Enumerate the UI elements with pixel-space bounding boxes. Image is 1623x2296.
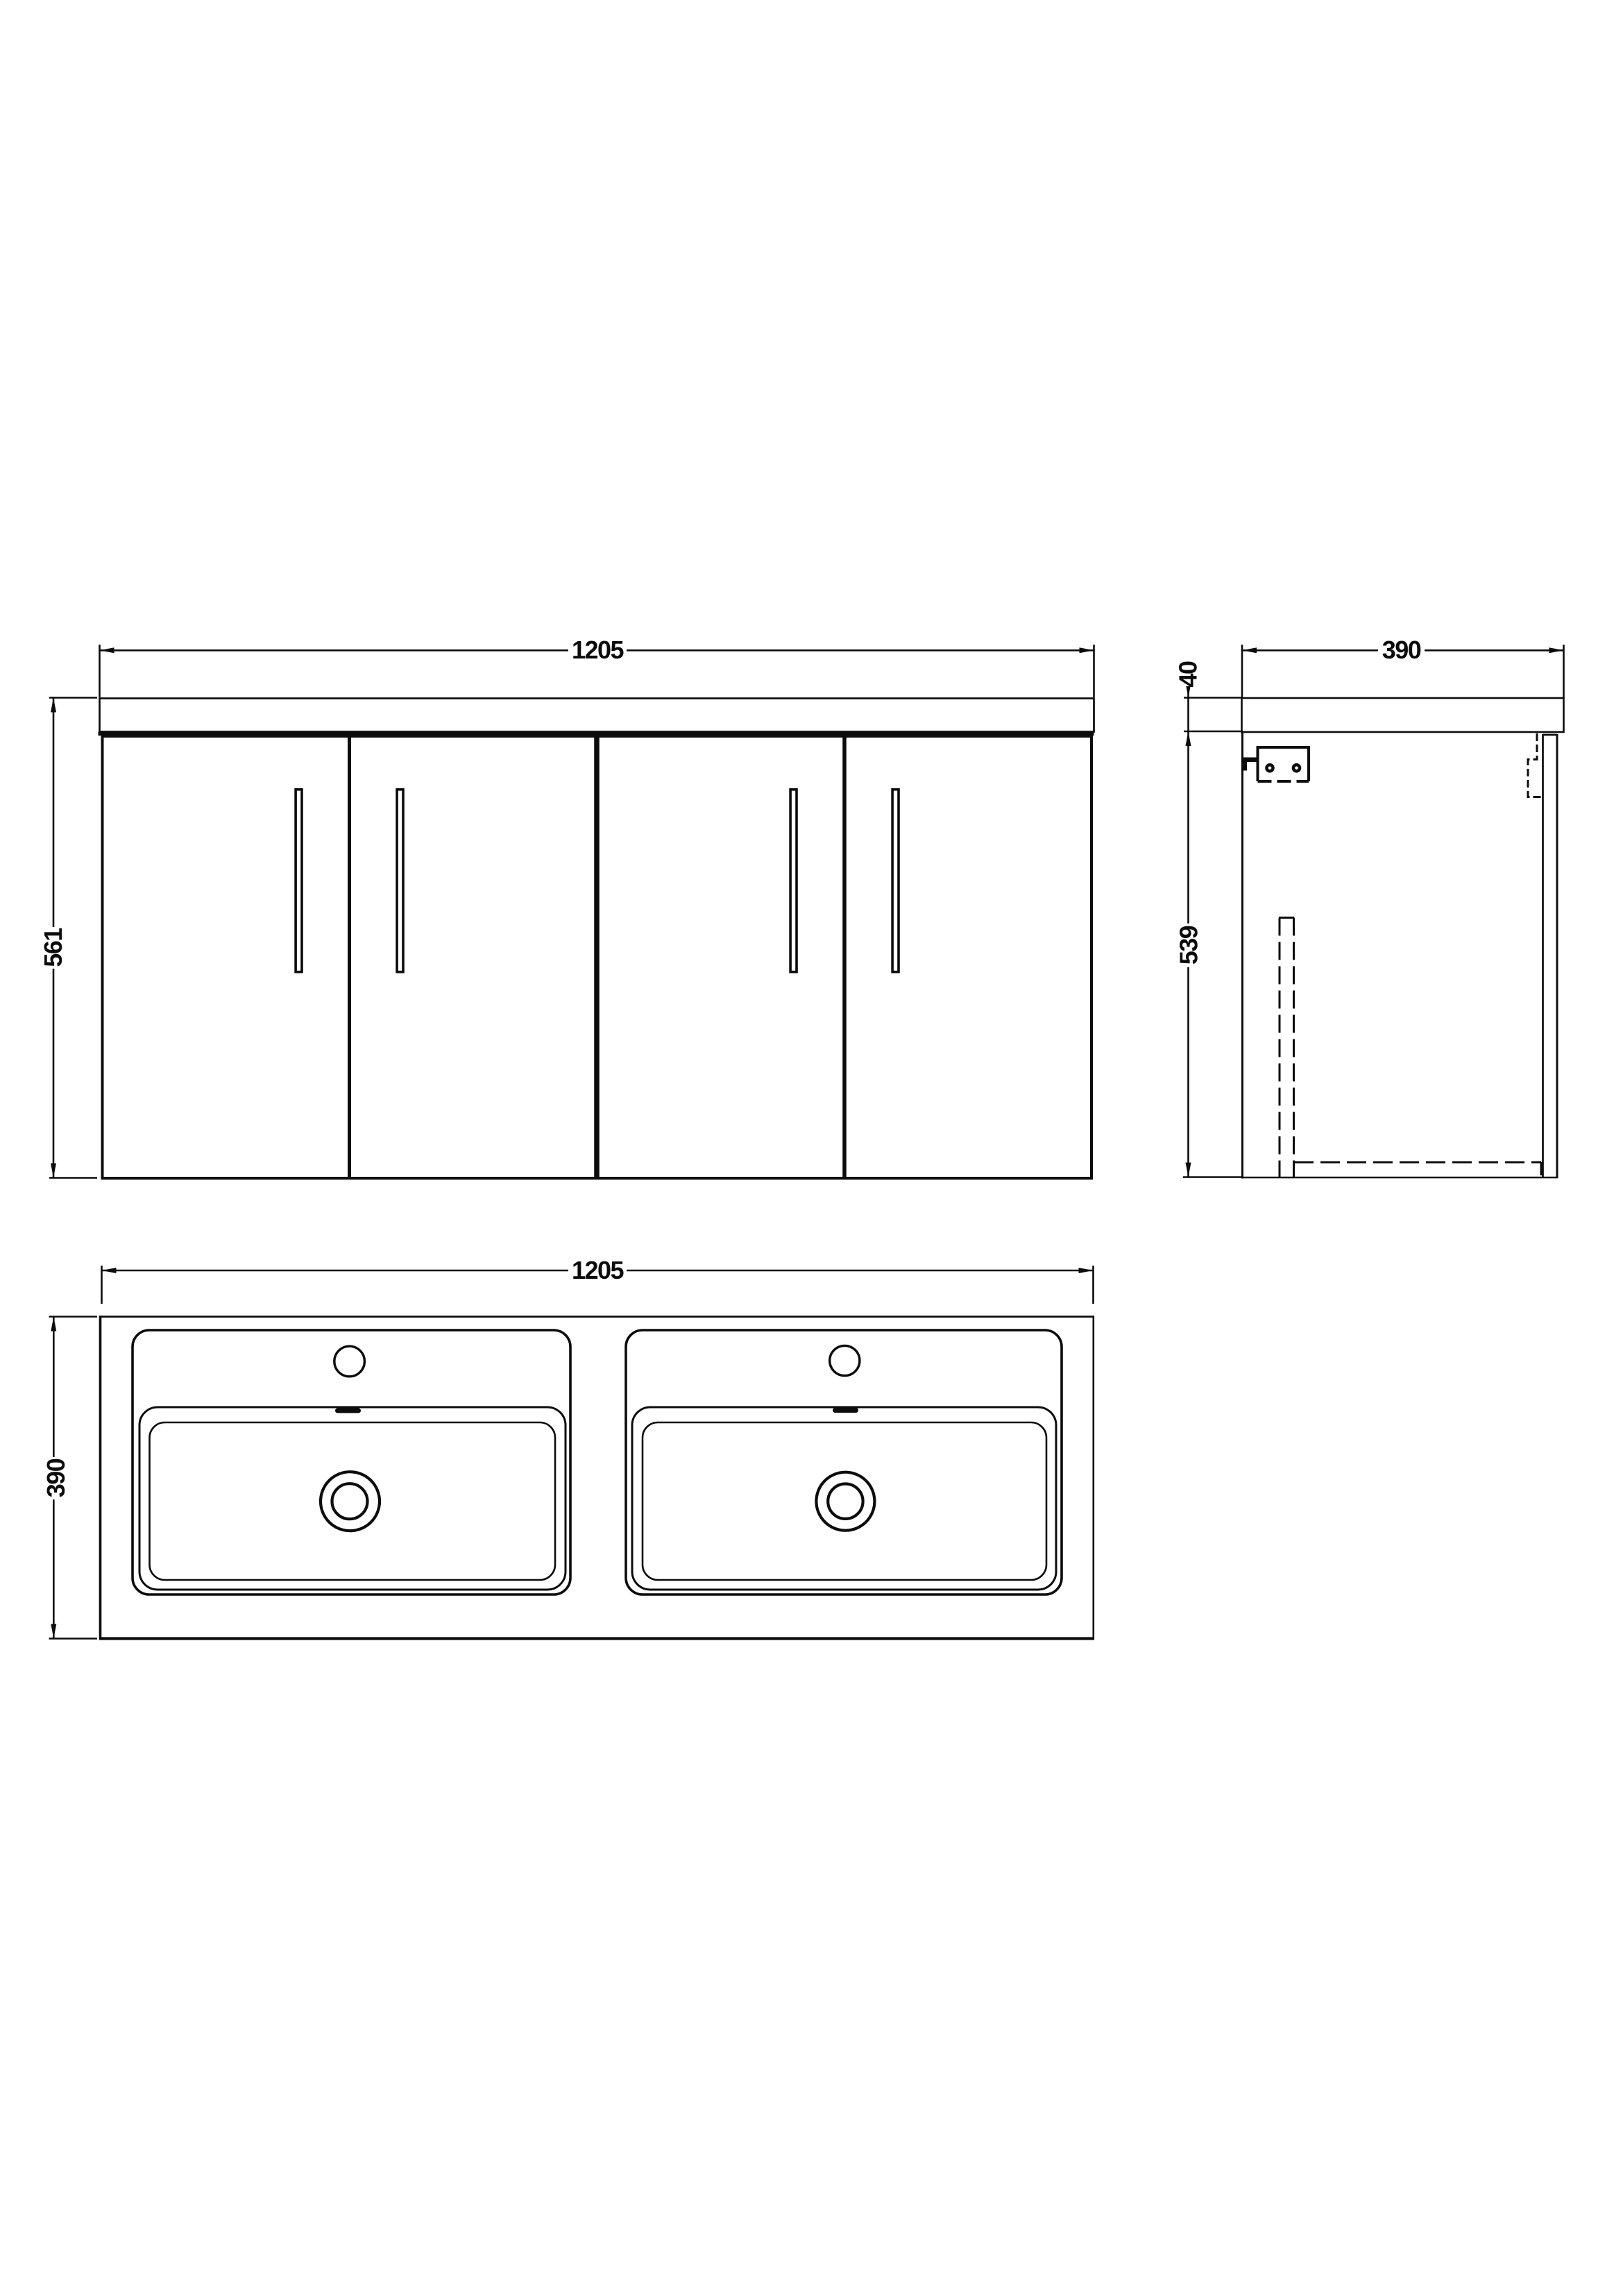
svg-text:1205: 1205 [572, 1256, 624, 1284]
svg-text:1205: 1205 [572, 636, 624, 664]
svg-text:390: 390 [42, 1459, 70, 1497]
svg-text:40: 40 [1174, 661, 1203, 688]
svg-text:539: 539 [1175, 926, 1203, 964]
svg-text:390: 390 [1382, 636, 1421, 664]
svg-text:561: 561 [39, 928, 67, 967]
